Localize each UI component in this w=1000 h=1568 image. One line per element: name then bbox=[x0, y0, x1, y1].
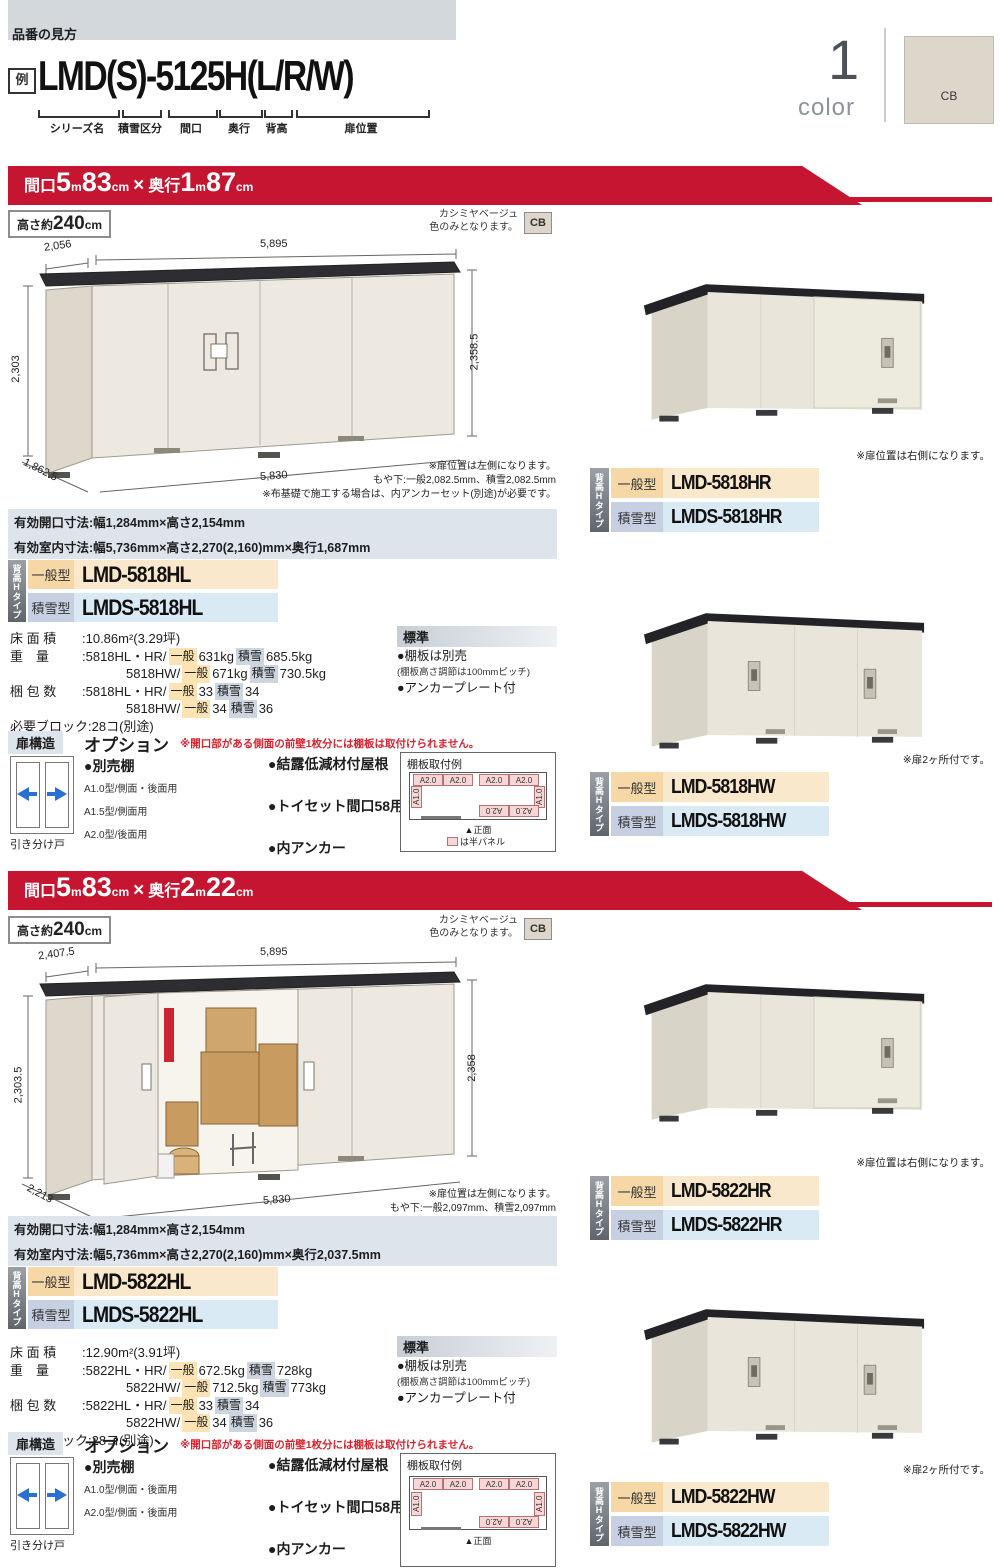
model-tab: 背高Hタイプ bbox=[590, 772, 609, 836]
model-code-text: LMDS-5818HR bbox=[671, 506, 782, 529]
snow-badge: 積雪 bbox=[215, 683, 243, 701]
banner-unit-m: m bbox=[71, 180, 82, 194]
snow-badge: 積雪 bbox=[215, 1397, 243, 1415]
pack-general: 34 bbox=[212, 1414, 226, 1432]
snow-badge: 積雪 bbox=[229, 700, 257, 718]
banner-width-m: 5 bbox=[56, 169, 71, 196]
shelf-cell: A2.0 bbox=[413, 1478, 443, 1490]
height-box-1: 高さ約240cm bbox=[8, 210, 111, 238]
standard-block-1: 標準 ●棚板は別売 (棚板高さ調節は100mmピッチ) ●アンカープレート付 bbox=[397, 626, 557, 698]
tech-drawing-2: 2,407.5 5,895 2,303.5 2,358 2,213 5,830 … bbox=[8, 944, 558, 1234]
model-tab: 背高Hタイプ bbox=[590, 1176, 609, 1240]
door-caption-2: 引き分け戸 bbox=[10, 1537, 65, 1553]
spec-text-1: 床 面 積:10.86m²(3.29坪) 重 量:5818HL・HR/一般631… bbox=[10, 630, 326, 735]
shelf-cell: A2.0 bbox=[443, 774, 473, 786]
floor-value: :12.90m²(3.91坪) bbox=[82, 1344, 180, 1362]
pack-general: 33 bbox=[199, 1397, 213, 1415]
color-note-line1: カシミヤベージュ bbox=[380, 914, 518, 927]
standard-note: (棚板高さ調節は100mmピッチ) bbox=[397, 666, 557, 679]
weight-general: 712.5kg bbox=[212, 1379, 258, 1397]
banner-depth-cm: 22 bbox=[206, 874, 236, 901]
color-swatch-label: CB bbox=[905, 89, 993, 103]
banner-depth-label: 奥行 bbox=[148, 877, 180, 901]
cb-chip-1: CB bbox=[524, 212, 552, 234]
general-badge: 一般 bbox=[169, 648, 197, 666]
option-shelf-col-2: ●別売棚 A1.0型/側面・後面用 A2.0型/側面・後面用 bbox=[84, 1457, 177, 1519]
snow-model-code: LMDS-5822HW bbox=[663, 1516, 829, 1546]
general-model-code: LMD-5822HR bbox=[663, 1176, 819, 1206]
snow-badge: 積雪 bbox=[250, 665, 278, 683]
pack-prefix: 5818HW/ bbox=[126, 700, 180, 718]
banner-unit-cm2: cm bbox=[236, 885, 253, 899]
pack-general: 33 bbox=[199, 683, 213, 701]
dim-left: 2,303 bbox=[10, 355, 22, 383]
model-code-text: LMD-5822HW bbox=[671, 1486, 775, 1509]
blue-arrow-left-icon bbox=[17, 787, 37, 801]
general-type-chip: 一般型 bbox=[611, 1176, 663, 1206]
shed-photo-2door-1 bbox=[640, 592, 930, 762]
snow-badge: 積雪 bbox=[236, 648, 264, 666]
snow-badge: 積雪 bbox=[260, 1379, 288, 1397]
snow-model-code: LMDS-5818HL bbox=[74, 593, 278, 622]
weight-prefix: 5822HW/ bbox=[126, 1379, 180, 1397]
snow-badge: 積雪 bbox=[247, 1362, 275, 1380]
pack-snow: 34 bbox=[245, 1397, 259, 1415]
banner-unit-m: m bbox=[71, 885, 82, 899]
shelf-cell: A2.0 bbox=[479, 1478, 509, 1490]
dim-top: 5,895 bbox=[260, 238, 288, 250]
drawing-note: もや下:一般2,082.5mm、積雪2,082.5mm bbox=[262, 474, 556, 488]
product-note: ※扉位置は右側になります。 bbox=[700, 1155, 990, 1170]
snow-type-chip: 積雪型 bbox=[611, 806, 663, 836]
options-warning-1: ※開口部がある側面の前壁1枚分には棚板は取付けられません。 bbox=[180, 736, 479, 751]
banner-unit-m2: m bbox=[195, 885, 206, 899]
snow-badge: 積雪 bbox=[229, 1414, 257, 1432]
pack-snow: 34 bbox=[245, 683, 259, 701]
option-items-col-2: ●結露低減材付屋根 ●トイセット間口58用 ●内アンカー (連結部は付属のプレー… bbox=[268, 1455, 415, 1568]
pack-snow: 36 bbox=[259, 700, 273, 718]
general-type-chip: 一般型 bbox=[28, 1267, 74, 1296]
shelf-option-item: A1.0型/側面・後面用 bbox=[84, 780, 177, 795]
shelf-cell: A2.0 bbox=[443, 1478, 473, 1490]
standard-title: 標準 bbox=[397, 626, 557, 647]
shelf-cell-side: A1.0 bbox=[411, 786, 422, 808]
door-diagram-2 bbox=[10, 1457, 74, 1535]
product-note: ※扉2ヶ所付です。 bbox=[700, 1462, 990, 1477]
general-badge: 一般 bbox=[182, 1414, 210, 1432]
model-tab: 背高Hタイプ bbox=[590, 1482, 609, 1546]
code-part-snow: 積雪区分 bbox=[112, 120, 168, 136]
color-note-line2: 色のみとなります。 bbox=[380, 221, 518, 234]
general-badge: 一般 bbox=[169, 683, 197, 701]
drawing-note: ※扉位置は左側になります。 bbox=[262, 460, 556, 474]
code-part-height: 背高 bbox=[254, 120, 299, 136]
shelf-legend: は半パネル bbox=[447, 835, 505, 848]
banner-depth-m: 1 bbox=[180, 169, 195, 196]
color-note-2: カシミヤベージュ 色のみとなります。 bbox=[380, 914, 518, 940]
banner-x: × bbox=[133, 880, 144, 902]
standard-title: 標準 bbox=[397, 1336, 557, 1357]
banner-x: × bbox=[133, 175, 144, 197]
weight-prefix: :5822HL・HR/ bbox=[82, 1362, 167, 1380]
standard-note: (棚板高さ調節は100mmピッチ) bbox=[397, 1376, 557, 1389]
color-count: 1 bbox=[828, 32, 859, 88]
option-item: ●内アンカー bbox=[268, 838, 415, 858]
banner-width-cm: 83 bbox=[82, 169, 112, 196]
model-code-text: LMD-5818HL bbox=[82, 562, 190, 588]
floor-label: 床 面 積 bbox=[10, 1344, 82, 1362]
snow-model-code: LMDS-5818HW bbox=[663, 806, 829, 836]
banner-depth-m: 2 bbox=[180, 874, 195, 901]
weight-snow: 728kg bbox=[277, 1362, 312, 1380]
shelf-option-item: A2.0型/後面用 bbox=[84, 826, 177, 841]
door-caption-1: 引き分け戸 bbox=[10, 836, 65, 852]
shelf-example-2: 棚板取付例 A2.0 A2.0 A2.0 A2.0 A1.0 A1.0 A2.0… bbox=[400, 1453, 556, 1567]
snow-model-code: LMDS-5818HR bbox=[663, 502, 819, 532]
pack-prefix: :5822HL・HR/ bbox=[82, 1397, 167, 1415]
general-model-code: LMD-5818HR bbox=[663, 468, 819, 498]
bracket-height bbox=[264, 110, 293, 118]
color-count-word: color bbox=[798, 94, 855, 122]
catalog-page: 品番の見方 例 LMD(S)-5125H(L/R/W) シリーズ名 積雪区分 間… bbox=[0, 0, 1000, 1568]
shed-photo-1door-2 bbox=[640, 962, 930, 1138]
weight-snow: 685.5kg bbox=[266, 648, 312, 666]
model-tab: 背高Hタイプ bbox=[590, 468, 609, 532]
height-prefix: 高さ約 bbox=[17, 922, 53, 939]
options-title-2: オプション bbox=[84, 1432, 169, 1457]
options-warning-2: ※開口部がある側面の前壁1枚分には棚板は取付けられません。 bbox=[180, 1437, 479, 1452]
door-structure-label-2: 扉構造 bbox=[8, 1432, 63, 1455]
weight-label: 重 量 bbox=[10, 1362, 82, 1380]
option-item: ●トイセット間口58用 bbox=[268, 1497, 415, 1517]
standard-item: ●アンカープレート付 bbox=[397, 679, 557, 698]
half-panel-swatch-icon bbox=[447, 837, 458, 846]
opening-dim-bar-2: 有効開口寸法:幅1,284mm×高さ2,154mm bbox=[8, 1216, 557, 1241]
shelf-option-item: A1.5型/側面用 bbox=[84, 803, 177, 818]
blue-arrow-right-icon bbox=[47, 1488, 67, 1502]
pack-label: 梱 包 数 bbox=[10, 683, 82, 701]
general-type-chip: 一般型 bbox=[28, 560, 74, 589]
tech-drawing-1: 2,056 5,895 2,303 2,358.5 1,862.5 5,830 … bbox=[8, 238, 558, 506]
cb-chip-2: CB bbox=[524, 918, 552, 940]
banner-unit-cm: cm bbox=[112, 180, 129, 194]
weight-label: 重 量 bbox=[10, 648, 82, 666]
door-diagram-1 bbox=[10, 756, 74, 834]
option-items-col-1: ●結露低減材付屋根 ●トイセット間口58用 ●内アンカー (連結部は付属のプレー… bbox=[268, 754, 415, 887]
height-box-2: 高さ約240cm bbox=[8, 916, 111, 944]
shelf-cell: A2.0 bbox=[509, 1516, 539, 1528]
shelf-option-item: A1.0型/側面・後面用 bbox=[84, 1481, 177, 1496]
general-type-chip: 一般型 bbox=[611, 468, 663, 498]
general-model-code: LMD-5822HL bbox=[74, 1267, 278, 1296]
shelf-example-1: 棚板取付例 A2.0 A2.0 A2.0 A2.0 A1.0 A1.0 A2.0… bbox=[400, 752, 556, 852]
shelf-cell: A2.0 bbox=[479, 805, 509, 817]
general-type-chip: 一般型 bbox=[611, 772, 663, 802]
shelf-cell: A2.0 bbox=[413, 774, 443, 786]
standard-item: ●アンカープレート付 bbox=[397, 1389, 557, 1408]
standard-item: ●棚板は別売 bbox=[397, 1357, 557, 1376]
pack-snow: 36 bbox=[259, 1414, 273, 1432]
model-code-text: LMD-5822HR bbox=[671, 1180, 771, 1203]
shelf-cell-side: A1.0 bbox=[411, 1492, 422, 1516]
banner-unit-cm2: cm bbox=[236, 180, 253, 194]
banner-depth-cm: 87 bbox=[206, 169, 236, 196]
shelf-option-item: A2.0型/側面・後面用 bbox=[84, 1504, 177, 1519]
snow-type-chip: 積雪型 bbox=[28, 1300, 74, 1329]
shelf-option-title: ●別売棚 bbox=[84, 756, 177, 776]
model-code-text: LMDS-5818HL bbox=[82, 595, 202, 621]
bracket-width bbox=[168, 110, 218, 118]
opening-dim-bar-1: 有効開口寸法:幅1,284mm×高さ2,154mm bbox=[8, 509, 557, 534]
model-code-text: LMD-5822HL bbox=[82, 1269, 190, 1295]
snow-type-chip: 積雪型 bbox=[611, 1210, 663, 1240]
weight-prefix: :5818HL・HR/ bbox=[82, 648, 167, 666]
shelf-example-title: 棚板取付例 bbox=[407, 756, 555, 772]
shelf-example-title: 棚板取付例 bbox=[407, 1457, 555, 1473]
general-model-code: LMD-5822HW bbox=[663, 1482, 829, 1512]
option-item: ●結露低減材付屋根 bbox=[268, 1455, 415, 1475]
option-item: ●内アンカー bbox=[268, 1539, 415, 1559]
shelf-front-caption: ▲正面 bbox=[401, 1534, 555, 1547]
shelf-cell: A2.0 bbox=[509, 1478, 539, 1490]
floor-value: :10.86m²(3.29坪) bbox=[82, 630, 180, 648]
color-note-1: カシミヤベージュ 色のみとなります。 bbox=[380, 208, 518, 234]
shed-photo-2door-2 bbox=[640, 1288, 930, 1458]
code-part-depth: 奥行 bbox=[219, 120, 259, 136]
general-badge: 一般 bbox=[169, 1397, 197, 1415]
general-model-code: LMD-5818HW bbox=[663, 772, 829, 802]
banner-width-label: 間口 bbox=[24, 877, 56, 901]
weight-general: 631kg bbox=[199, 648, 234, 666]
blue-arrow-right-icon bbox=[47, 787, 67, 801]
example-label: 例 bbox=[8, 68, 36, 94]
bracket-snow bbox=[122, 110, 162, 118]
model-tab-2: 背高Hタイプ bbox=[8, 1267, 26, 1329]
shelf-cell: A2.0 bbox=[509, 774, 539, 786]
blue-arrow-left-icon bbox=[17, 1488, 37, 1502]
drawing-notes-1: ※扉位置は左側になります。 もや下:一般2,082.5mm、積雪2,082.5m… bbox=[262, 460, 556, 502]
banner-width-label: 間口 bbox=[24, 172, 56, 196]
code-part-series: シリーズ名 bbox=[38, 120, 116, 136]
standard-item: ●棚板は別売 bbox=[397, 647, 557, 666]
height-unit: cm bbox=[85, 218, 102, 232]
size-banner-2: 間口5m83cm×奥行2m22cm bbox=[8, 871, 862, 910]
snow-type-chip: 積雪型 bbox=[28, 593, 74, 622]
options-title-1: オプション bbox=[84, 731, 169, 756]
banner-depth-label: 奥行 bbox=[148, 172, 180, 196]
bracket-series bbox=[38, 110, 120, 118]
model-code-text: LMD-5818HW bbox=[671, 776, 775, 799]
model-code-title: LMD(S)-5125H(L/R/W) bbox=[38, 52, 454, 100]
shelf-cell: A2.0 bbox=[479, 1516, 509, 1528]
drawing-note: もや下:一般2,097mm、積雪2,097mm bbox=[262, 1202, 556, 1216]
dim-left: 2,303.5 bbox=[12, 1067, 24, 1104]
weight-snow: 773kg bbox=[291, 1379, 326, 1397]
color-note-line2: 色のみとなります。 bbox=[380, 927, 518, 940]
general-type-chip: 一般型 bbox=[611, 1482, 663, 1512]
pack-label: 梱 包 数 bbox=[10, 1397, 82, 1415]
weight-general: 671kg bbox=[212, 665, 247, 683]
code-part-door: 扉位置 bbox=[296, 120, 426, 136]
height-prefix: 高さ約 bbox=[17, 216, 53, 233]
model-code-text: LMDS-5822HR bbox=[671, 1214, 782, 1237]
bracket-depth bbox=[219, 110, 263, 118]
snow-type-chip: 積雪型 bbox=[611, 1516, 663, 1546]
model-tab-1: 背高Hタイプ bbox=[8, 560, 26, 622]
drawing-note: ※扉位置は左側になります。 bbox=[262, 1188, 556, 1202]
model-code-text: LMD-5818HR bbox=[671, 472, 771, 495]
shelf-cell: A2.0 bbox=[479, 774, 509, 786]
shed-photo-1door-1 bbox=[640, 262, 930, 438]
general-model-code: LMD-5818HL bbox=[74, 560, 278, 589]
interior-dim-bar-2: 有効室内寸法:幅5,736mm×高さ2,270(2,160)mm×奥行2,037… bbox=[8, 1241, 557, 1266]
model-code-text: LMDS-5822HL bbox=[82, 1302, 202, 1328]
dim-right: 2,358 bbox=[466, 1054, 478, 1082]
bracket-door bbox=[296, 110, 430, 118]
code-part-width: 間口 bbox=[168, 120, 214, 136]
model-code-text: LMDS-5818HW bbox=[671, 810, 786, 833]
weight-snow: 730.5kg bbox=[280, 665, 326, 683]
height-value: 240 bbox=[53, 919, 85, 941]
dim-top: 5,895 bbox=[260, 946, 288, 958]
option-item: ●トイセット間口58用 bbox=[268, 796, 415, 816]
header-divider bbox=[884, 28, 886, 122]
shelf-cell-side: A1.0 bbox=[534, 1492, 545, 1516]
pack-prefix: :5818HL・HR/ bbox=[82, 683, 167, 701]
general-badge: 一般 bbox=[182, 1379, 210, 1397]
general-badge: 一般 bbox=[182, 665, 210, 683]
shelf-cell: A2.0 bbox=[509, 805, 539, 817]
option-item: ●結露低減材付屋根 bbox=[268, 754, 415, 774]
size-banner-1: 間口5m83cm×奥行1m87cm bbox=[8, 166, 862, 205]
weight-prefix: 5818HW/ bbox=[126, 665, 180, 683]
standard-block-2: 標準 ●棚板は別売 (棚板高さ調節は100mmピッチ) ●アンカープレート付 bbox=[397, 1336, 557, 1408]
weight-general: 672.5kg bbox=[199, 1362, 245, 1380]
dim-right: 2,358.5 bbox=[468, 334, 480, 371]
height-value: 240 bbox=[53, 213, 85, 235]
height-unit: cm bbox=[85, 924, 102, 938]
model-code-text: LMDS-5822HW bbox=[671, 1520, 786, 1543]
color-swatch-cb: CB bbox=[904, 36, 994, 124]
snow-type-chip: 積雪型 bbox=[611, 502, 663, 532]
product-note: ※扉2ヶ所付です。 bbox=[700, 752, 990, 767]
interior-dim-bar-1: 有効室内寸法:幅5,736mm×高さ2,270(2,160)mm×奥行1,687… bbox=[8, 534, 557, 559]
general-badge: 一般 bbox=[169, 1362, 197, 1380]
general-badge: 一般 bbox=[182, 700, 210, 718]
pack-general: 34 bbox=[212, 700, 226, 718]
banner-width-cm: 83 bbox=[82, 874, 112, 901]
banner-unit-cm: cm bbox=[112, 885, 129, 899]
banner-width-m: 5 bbox=[56, 874, 71, 901]
product-note: ※扉位置は右側になります。 bbox=[700, 448, 990, 463]
snow-model-code: LMDS-5822HR bbox=[663, 1210, 819, 1240]
banner-unit-m2: m bbox=[195, 180, 206, 194]
snow-model-code: LMDS-5822HL bbox=[74, 1300, 278, 1329]
floor-label: 床 面 積 bbox=[10, 630, 82, 648]
shelf-legend-text: は半パネル bbox=[460, 835, 505, 848]
pack-prefix: 5822HW/ bbox=[126, 1414, 180, 1432]
header-lead: 品番の見方 bbox=[12, 24, 77, 43]
color-note-line1: カシミヤベージュ bbox=[380, 208, 518, 221]
drawing-note: ※布基礎で施工する場合は、内アンカーセット(別途)が必要です。 bbox=[262, 488, 556, 502]
door-structure-label-1: 扉構造 bbox=[8, 731, 63, 754]
shelf-option-title: ●別売棚 bbox=[84, 1457, 177, 1477]
option-shelf-col-1: ●別売棚 A1.0型/側面・後面用 A1.5型/側面用 A2.0型/後面用 bbox=[84, 756, 177, 841]
